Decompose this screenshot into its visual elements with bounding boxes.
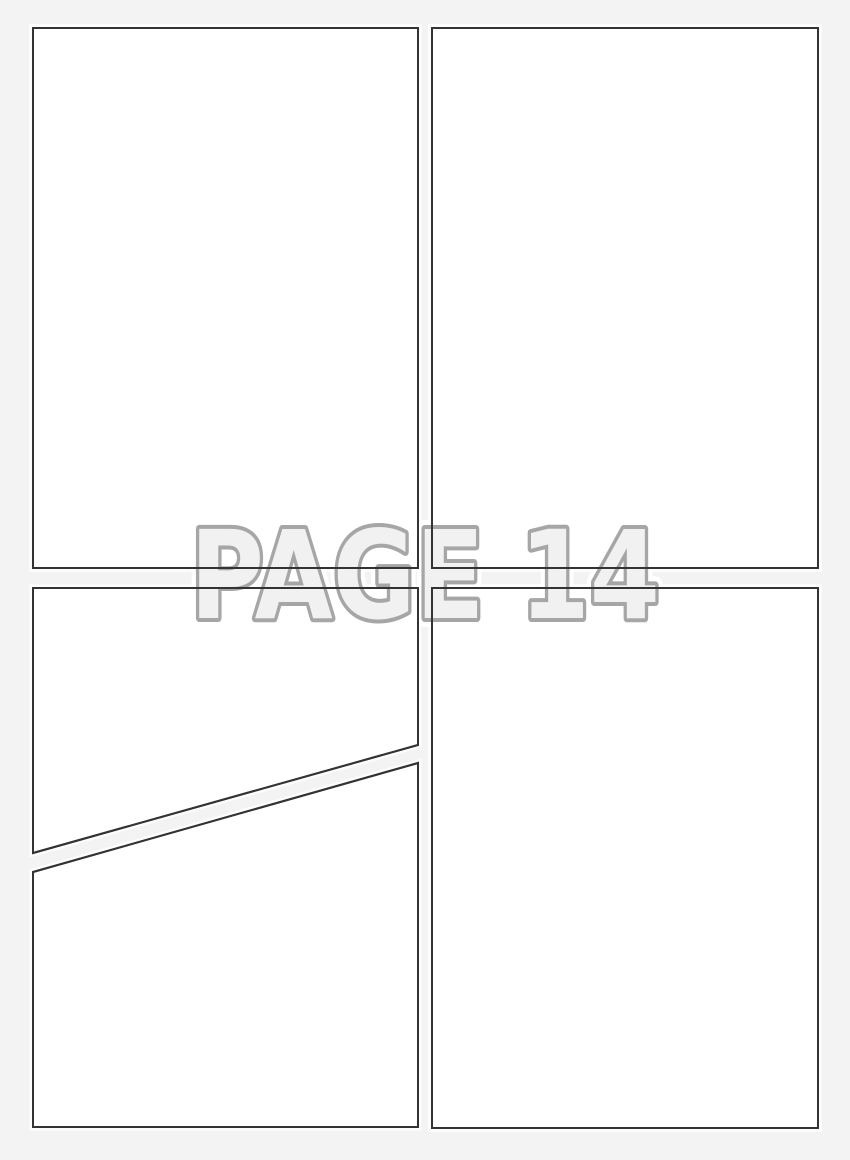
comic-panel-top-right <box>431 27 819 569</box>
comic-page-template: PAGE 14 PAGE 14 <box>0 0 850 1160</box>
comic-panel-bottom-right <box>431 587 819 1129</box>
comic-panel-top-left <box>32 27 419 569</box>
comic-panel-bottom-left-group <box>32 587 419 1128</box>
